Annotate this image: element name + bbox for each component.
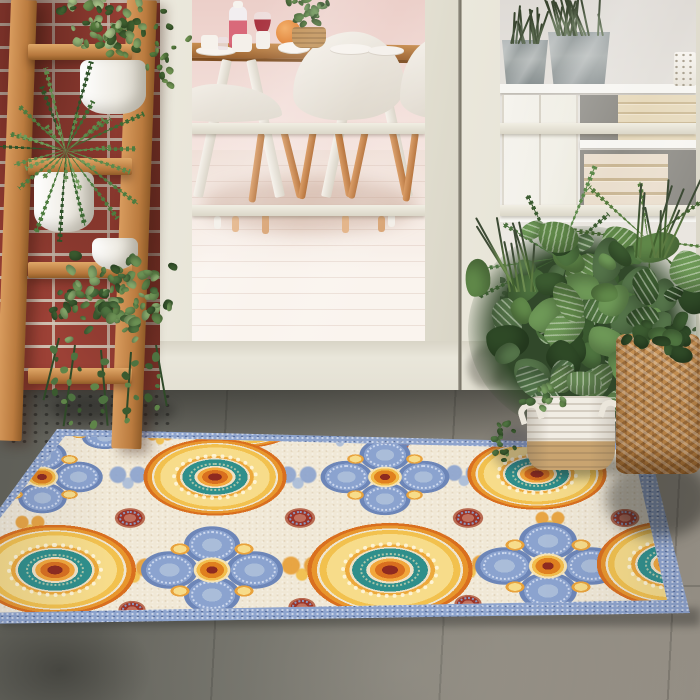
left-door-glass — [192, 0, 425, 341]
vine-leaf — [490, 436, 498, 443]
glazing-bar — [192, 205, 425, 216]
glass-reflection — [192, 0, 425, 341]
medallion-accent — [70, 431, 89, 439]
rug-rosette — [284, 595, 320, 619]
patio-scene — [0, 0, 700, 700]
rug-medallion-blue — [321, 437, 449, 517]
medallion-center — [522, 549, 574, 582]
medallion-accent — [232, 542, 256, 556]
vine-leaf — [501, 458, 507, 463]
door-seam — [458, 0, 462, 396]
medallion-accent — [503, 538, 527, 552]
left-patio-door — [160, 0, 462, 396]
rug-rosette — [280, 505, 320, 531]
medallion-accent — [232, 584, 256, 598]
medallion-accent — [168, 542, 192, 556]
medallion-accent — [569, 580, 593, 594]
medallion-center — [187, 553, 237, 586]
medallion-accent — [404, 489, 426, 501]
medallion-accent — [404, 453, 426, 465]
medallion-center — [362, 463, 408, 492]
medallion-accent — [59, 454, 79, 465]
ivy-leaf — [51, 388, 58, 396]
ivy-leaf — [121, 287, 129, 292]
trailing-leaf — [164, 57, 168, 63]
rug-medallion-gold — [139, 436, 291, 518]
medallion-accent — [503, 580, 527, 594]
door-bottom-rail — [160, 341, 462, 396]
medallion-accent — [168, 584, 192, 598]
rug-medallion-gold — [302, 520, 478, 620]
rug-medallion-blue — [142, 524, 282, 616]
glazing-bar — [500, 123, 696, 134]
medallion-accent — [345, 453, 367, 465]
glazing-bar — [192, 123, 425, 134]
medallion-accent — [569, 538, 593, 552]
medallion-accent — [59, 489, 79, 500]
